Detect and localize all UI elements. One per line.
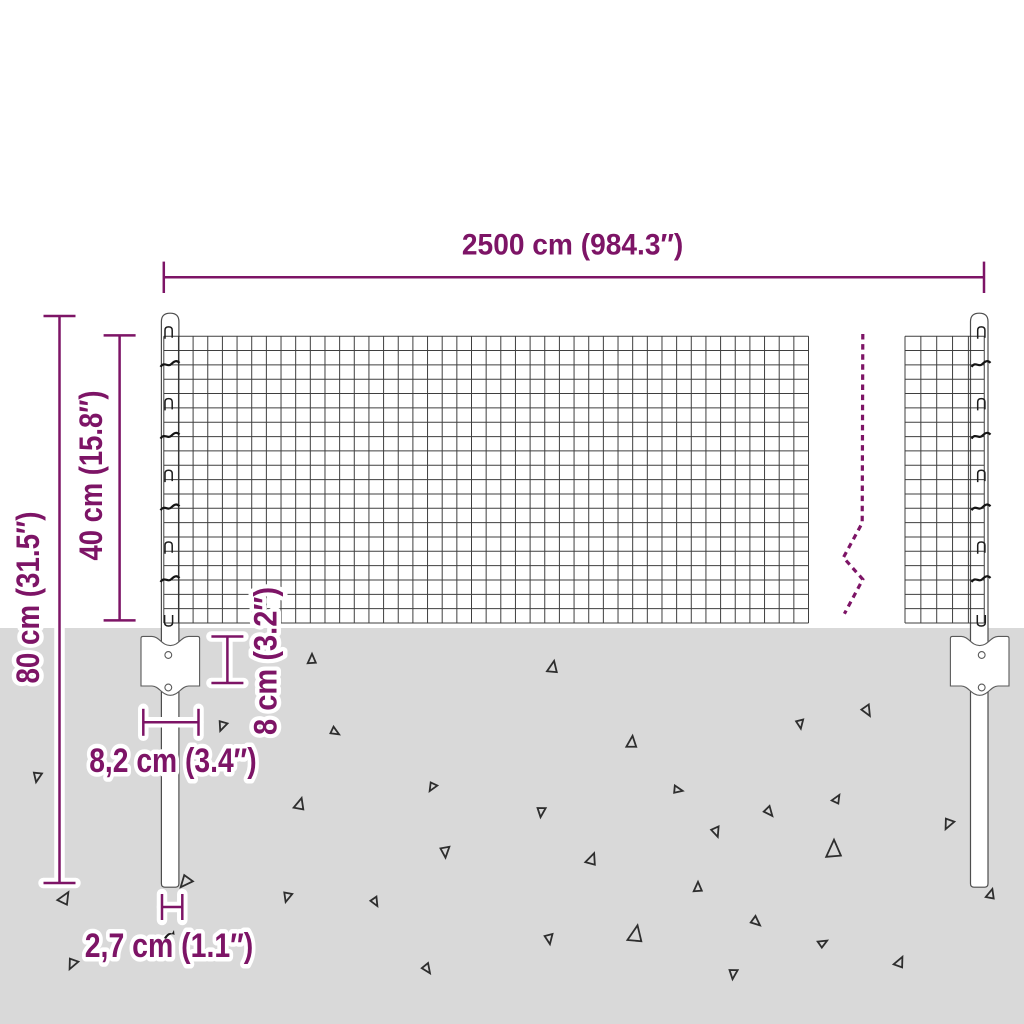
svg-text:2,7 cm (1.1″): 2,7 cm (1.1″) — [85, 927, 254, 965]
svg-text:40 cm (15.8″): 40 cm (15.8″) — [73, 391, 109, 561]
svg-text:80 cm (31.5″): 80 cm (31.5″) — [10, 512, 46, 684]
svg-text:8 cm (3.2″): 8 cm (3.2″) — [247, 587, 283, 735]
svg-text:8,2 cm (3.4″): 8,2 cm (3.4″) — [89, 742, 256, 780]
svg-text:2500 cm (984.3″): 2500 cm (984.3″) — [462, 229, 683, 262]
